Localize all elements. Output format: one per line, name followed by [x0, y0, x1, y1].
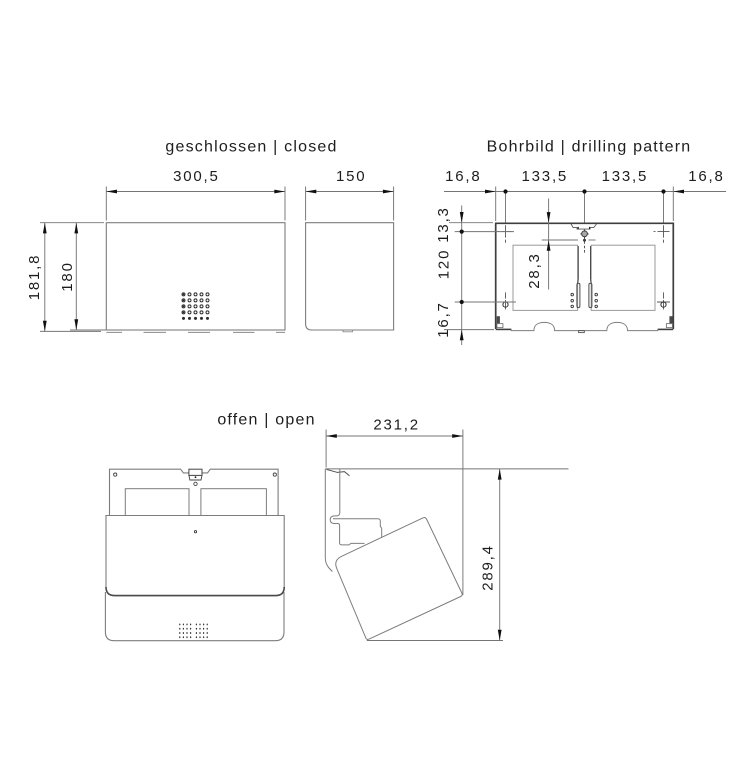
svg-text:289,4: 289,4	[479, 544, 496, 591]
svg-text:16,8: 16,8	[688, 168, 724, 185]
svg-text:150: 150	[336, 168, 366, 185]
svg-text:300,5: 300,5	[173, 168, 220, 185]
svg-text:16,8: 16,8	[445, 168, 481, 185]
svg-text:offen | open: offen | open	[217, 411, 315, 428]
svg-text:13,3: 13,3	[435, 206, 452, 242]
svg-text:133,5: 133,5	[602, 168, 649, 185]
svg-text:16,7: 16,7	[435, 301, 452, 337]
svg-text:180: 180	[59, 261, 76, 291]
svg-text:133,5: 133,5	[522, 168, 569, 185]
svg-text:28,3: 28,3	[526, 252, 543, 288]
svg-text:Bohrbild | drilling pattern: Bohrbild | drilling pattern	[487, 138, 692, 155]
svg-text:120: 120	[435, 249, 452, 279]
svg-text:231,2: 231,2	[373, 417, 420, 434]
svg-text:181,8: 181,8	[26, 254, 43, 301]
svg-text:geschlossen | closed: geschlossen | closed	[165, 138, 337, 155]
